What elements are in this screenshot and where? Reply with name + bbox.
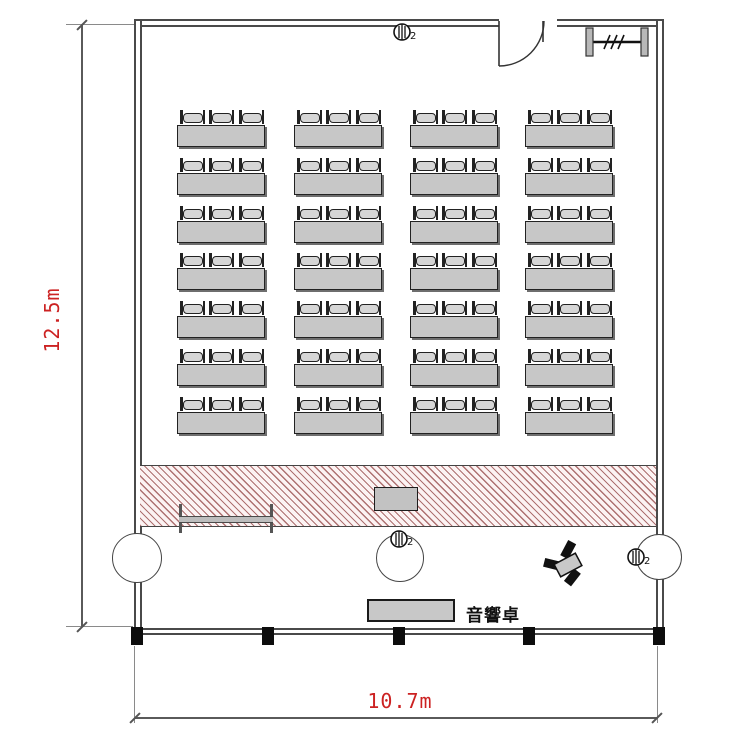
chair xyxy=(528,112,553,123)
desk xyxy=(177,173,265,195)
desk xyxy=(294,173,382,195)
chair xyxy=(326,399,351,410)
chair xyxy=(413,208,438,219)
chair xyxy=(209,351,234,362)
desk xyxy=(177,268,265,290)
chair xyxy=(180,303,205,314)
desk xyxy=(177,125,265,147)
chair xyxy=(472,351,497,362)
desk xyxy=(525,364,613,386)
pillar xyxy=(653,627,665,645)
chair xyxy=(472,303,497,314)
chair xyxy=(239,160,264,171)
chair xyxy=(239,255,264,266)
chair xyxy=(209,399,234,410)
outlet-count: 2 xyxy=(644,557,650,567)
chair xyxy=(239,351,264,362)
chair xyxy=(528,303,553,314)
desk xyxy=(410,173,498,195)
door-swing xyxy=(494,16,566,74)
chair xyxy=(326,160,351,171)
chair xyxy=(413,160,438,171)
chair xyxy=(326,351,351,362)
chair xyxy=(356,160,381,171)
desk xyxy=(177,412,265,434)
chair xyxy=(326,303,351,314)
desk xyxy=(525,125,613,147)
chair xyxy=(587,255,612,266)
chair xyxy=(557,351,582,362)
chair xyxy=(297,351,322,362)
chair xyxy=(356,208,381,219)
desk xyxy=(177,316,265,338)
chair xyxy=(180,399,205,410)
outlet-count: 2 xyxy=(410,32,416,42)
chair xyxy=(442,399,467,410)
chair xyxy=(587,399,612,410)
chair xyxy=(528,160,553,171)
chair xyxy=(442,255,467,266)
pillar xyxy=(523,627,535,645)
outlet-symbol-stage-front: 2 xyxy=(389,528,413,548)
desk xyxy=(294,412,382,434)
desk xyxy=(410,364,498,386)
sound-console-desk xyxy=(367,599,455,622)
desk xyxy=(177,221,265,243)
wall-top-inner-left xyxy=(140,25,499,27)
desk xyxy=(294,125,382,147)
desk xyxy=(525,412,613,434)
chair xyxy=(356,112,381,123)
chair xyxy=(209,112,234,123)
chair xyxy=(442,208,467,219)
chair xyxy=(356,255,381,266)
desk xyxy=(525,268,613,290)
chair xyxy=(413,351,438,362)
sound-console-label: 音響卓 xyxy=(466,601,520,626)
desk xyxy=(410,221,498,243)
dim-extension-top-left xyxy=(66,24,134,25)
wall-top-outer-right xyxy=(557,19,663,21)
chair xyxy=(587,351,612,362)
chair xyxy=(472,399,497,410)
desk xyxy=(525,316,613,338)
chair xyxy=(209,303,234,314)
chair xyxy=(472,160,497,171)
chair xyxy=(239,399,264,410)
chair xyxy=(180,160,205,171)
podium xyxy=(374,487,418,511)
pillar xyxy=(262,627,274,645)
outlet-icon xyxy=(626,547,646,567)
desk xyxy=(525,221,613,243)
rack-symbol xyxy=(582,26,652,60)
chair xyxy=(587,303,612,314)
chair xyxy=(587,208,612,219)
chair xyxy=(180,255,205,266)
chair xyxy=(326,112,351,123)
chair xyxy=(209,208,234,219)
wall-top-outer-left xyxy=(134,19,499,21)
outlet-icon xyxy=(389,528,409,548)
floor-plan: 12.5m 10.7m xyxy=(0,0,750,750)
outlet-icon xyxy=(392,22,412,42)
chair xyxy=(472,112,497,123)
dim-extension-bottom-left xyxy=(66,626,133,627)
chair xyxy=(239,303,264,314)
chair xyxy=(239,112,264,123)
height-dimension-label: 12.5m xyxy=(39,260,65,380)
chair xyxy=(356,351,381,362)
dim-extension-bottom-r xyxy=(657,646,658,723)
outlet-count: 2 xyxy=(407,538,413,548)
chair xyxy=(442,112,467,123)
chair xyxy=(587,160,612,171)
chair xyxy=(557,303,582,314)
desk xyxy=(177,364,265,386)
chair xyxy=(209,160,234,171)
desk xyxy=(294,221,382,243)
chair xyxy=(180,208,205,219)
pillar xyxy=(393,627,405,645)
chair xyxy=(557,112,582,123)
chair xyxy=(557,399,582,410)
chair xyxy=(297,303,322,314)
chair xyxy=(326,255,351,266)
chair xyxy=(413,255,438,266)
chair xyxy=(528,255,553,266)
chair xyxy=(239,208,264,219)
outlet-symbol-top: 2 xyxy=(392,22,416,42)
chair xyxy=(297,208,322,219)
column-left xyxy=(112,533,162,583)
chair xyxy=(180,351,205,362)
chair xyxy=(356,303,381,314)
chair xyxy=(297,112,322,123)
chair xyxy=(557,160,582,171)
pillar xyxy=(131,627,143,645)
desk xyxy=(410,125,498,147)
desk xyxy=(294,268,382,290)
chair xyxy=(587,112,612,123)
desk xyxy=(410,316,498,338)
chair xyxy=(557,208,582,219)
dim-extension-bottom-l xyxy=(134,646,135,723)
chair xyxy=(297,255,322,266)
width-dimension-label: 10.7m xyxy=(340,688,460,714)
desk xyxy=(525,173,613,195)
chair xyxy=(528,208,553,219)
chair xyxy=(356,399,381,410)
chair xyxy=(472,255,497,266)
chair xyxy=(442,303,467,314)
desk xyxy=(294,364,382,386)
chair xyxy=(442,351,467,362)
chair xyxy=(180,112,205,123)
chair xyxy=(557,255,582,266)
desk xyxy=(294,316,382,338)
chair xyxy=(442,160,467,171)
bench-rail xyxy=(179,516,273,523)
vertical-dimension-line xyxy=(81,25,83,627)
outlet-symbol-right: 2 xyxy=(626,547,650,567)
fan-stool-symbol xyxy=(543,540,593,590)
chair xyxy=(528,399,553,410)
chair xyxy=(209,255,234,266)
desk xyxy=(410,268,498,290)
chair xyxy=(297,160,322,171)
chair xyxy=(297,399,322,410)
chair xyxy=(413,303,438,314)
chair xyxy=(413,112,438,123)
desk xyxy=(410,412,498,434)
chair xyxy=(326,208,351,219)
chair xyxy=(413,399,438,410)
chair xyxy=(472,208,497,219)
chair xyxy=(528,351,553,362)
horizontal-dimension-line xyxy=(135,717,658,719)
